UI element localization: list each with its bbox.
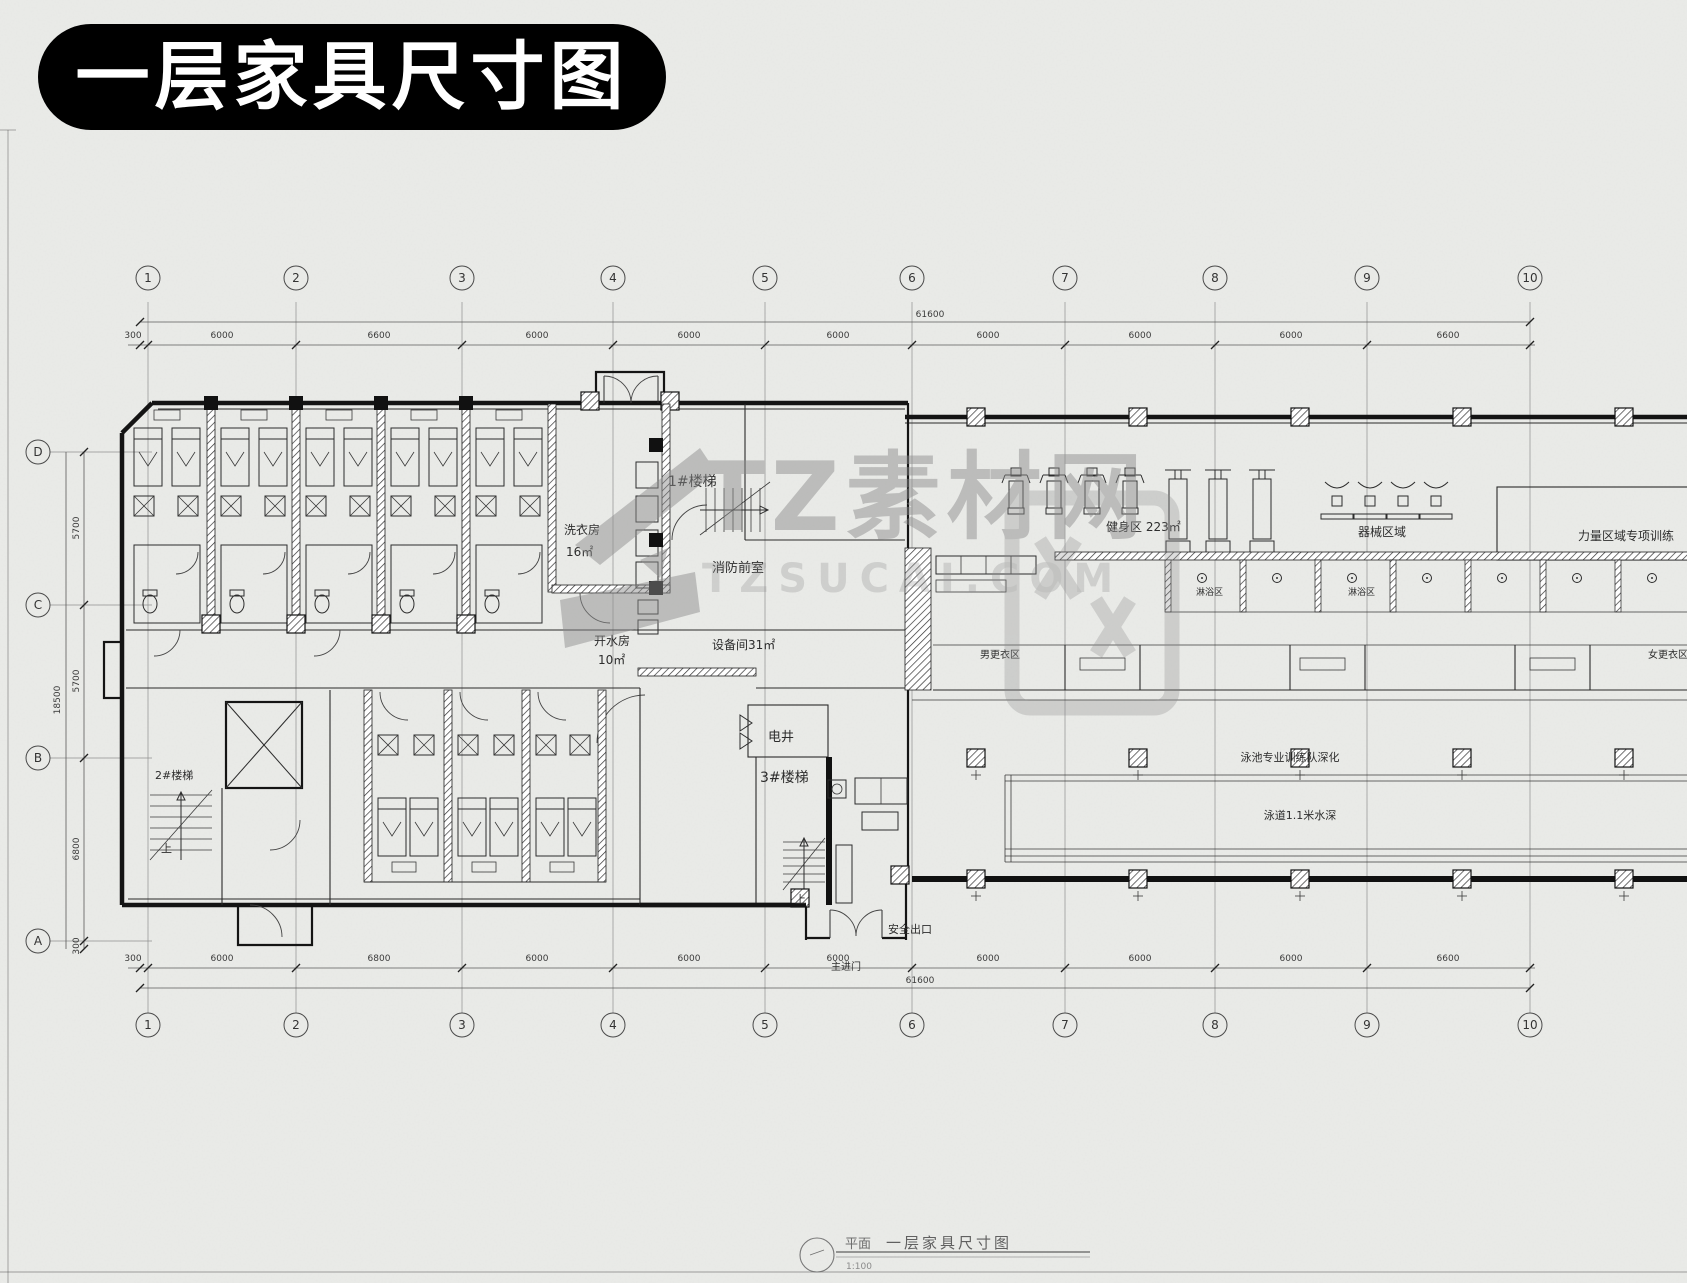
grid-column-label: 3 bbox=[458, 271, 466, 285]
room-label: 10㎡ bbox=[598, 653, 625, 667]
grid-column-label: 2 bbox=[292, 271, 300, 285]
grid-row-label: A bbox=[34, 934, 43, 948]
dim-segment-value: 6800 bbox=[368, 954, 391, 964]
grid-column-label: 3 bbox=[458, 1018, 466, 1032]
dim-segment-value: 6000 bbox=[977, 954, 1000, 964]
grid-column-label: 7 bbox=[1061, 271, 1069, 285]
grid-column-label: 8 bbox=[1211, 1018, 1219, 1032]
dim-segment-value: 6800 bbox=[72, 837, 82, 860]
grid-column-label: 5 bbox=[761, 271, 769, 285]
floor-plan-canvas: 1122334455667788991010DCBA 6160030060006… bbox=[0, 0, 1687, 1283]
title-block-name: 一层家具尺寸图 bbox=[886, 1234, 1012, 1252]
dim-segment-value: 6000 bbox=[1280, 954, 1303, 964]
grid-column-label: 4 bbox=[609, 271, 617, 285]
dim-segment-value: 6000 bbox=[1129, 331, 1152, 341]
dim-segment-value: 6600 bbox=[1437, 954, 1460, 964]
paper-texture bbox=[0, 0, 1687, 1283]
grid-row-label: B bbox=[34, 751, 42, 765]
title-block-prefix: 平面 bbox=[845, 1237, 871, 1252]
grid-column-label: 7 bbox=[1061, 1018, 1069, 1032]
dim-segment-value: 6600 bbox=[368, 331, 391, 341]
room-label: 2#楼梯 bbox=[155, 768, 193, 782]
room-label: 淋浴区 bbox=[1196, 586, 1223, 598]
room-label: 淋浴区 bbox=[1348, 586, 1375, 598]
room-label: 电井 bbox=[768, 730, 794, 745]
dim-total-value: 18500 bbox=[53, 685, 63, 714]
room-label: 主进门 bbox=[831, 960, 861, 973]
room-label: 设备间31㎡ bbox=[712, 638, 775, 652]
title-badge: 一层家具尺寸图 bbox=[38, 24, 666, 130]
grid-column-label: 6 bbox=[908, 1018, 916, 1032]
dim-segment-value: 6000 bbox=[526, 331, 549, 341]
grid-row-label: D bbox=[33, 445, 42, 459]
title-badge-text: 一层家具尺寸图 bbox=[76, 40, 629, 114]
room-label: 上 bbox=[795, 893, 806, 906]
dim-segment-value: 6000 bbox=[526, 954, 549, 964]
room-label: 上 bbox=[161, 842, 172, 855]
grid-column-label: 8 bbox=[1211, 271, 1219, 285]
room-label: 泳池专业训练队深化 bbox=[1241, 750, 1340, 764]
dim-segment-value: 5700 bbox=[72, 516, 82, 539]
page: { "title_badge": { "text": "一层家具尺寸图", "b… bbox=[0, 0, 1687, 1283]
room-label: 3#楼梯 bbox=[760, 770, 809, 786]
room-label: 器械区域 bbox=[1358, 524, 1406, 539]
grid-column-label: 10 bbox=[1522, 271, 1537, 285]
room-label: 安全出口 bbox=[888, 922, 932, 936]
dim-segment-value: 300 bbox=[72, 937, 82, 954]
dim-total-value: 61600 bbox=[906, 976, 935, 986]
grid-column-label: 5 bbox=[761, 1018, 769, 1032]
grid-column-label: 9 bbox=[1363, 1018, 1371, 1032]
dim-segment-value: 6000 bbox=[1280, 331, 1303, 341]
grid-column-label: 2 bbox=[292, 1018, 300, 1032]
room-label: 力量区域专项训练 bbox=[1578, 528, 1674, 543]
dim-segment-value: 6600 bbox=[1437, 331, 1460, 341]
grid-column-label: 4 bbox=[609, 1018, 617, 1032]
title-block-scale: 1:100 bbox=[846, 1262, 872, 1272]
dim-segment-value: 300 bbox=[124, 331, 141, 341]
grid-column-label: 9 bbox=[1363, 271, 1371, 285]
room-label: 泳道1.1米水深 bbox=[1264, 808, 1337, 822]
dim-segment-value: 6000 bbox=[827, 331, 850, 341]
grid-column-label: 10 bbox=[1522, 1018, 1537, 1032]
dim-total-value: 61600 bbox=[916, 310, 945, 320]
grid-row-label: C bbox=[34, 598, 42, 612]
grid-column-label: 1 bbox=[144, 271, 152, 285]
dim-segment-value: 6000 bbox=[977, 331, 1000, 341]
dim-segment-value: 6000 bbox=[211, 331, 234, 341]
dim-segment-value: 6000 bbox=[678, 954, 701, 964]
grid-column-label: 1 bbox=[144, 1018, 152, 1032]
dim-segment-value: 6000 bbox=[1129, 954, 1152, 964]
room-label: 女更衣区 bbox=[1648, 648, 1687, 661]
dim-segment-value: 6000 bbox=[211, 954, 234, 964]
dim-segment-value: 300 bbox=[124, 954, 141, 964]
dim-segment-value: 5700 bbox=[72, 669, 82, 692]
dim-segment-value: 6000 bbox=[678, 331, 701, 341]
grid-column-label: 6 bbox=[908, 271, 916, 285]
